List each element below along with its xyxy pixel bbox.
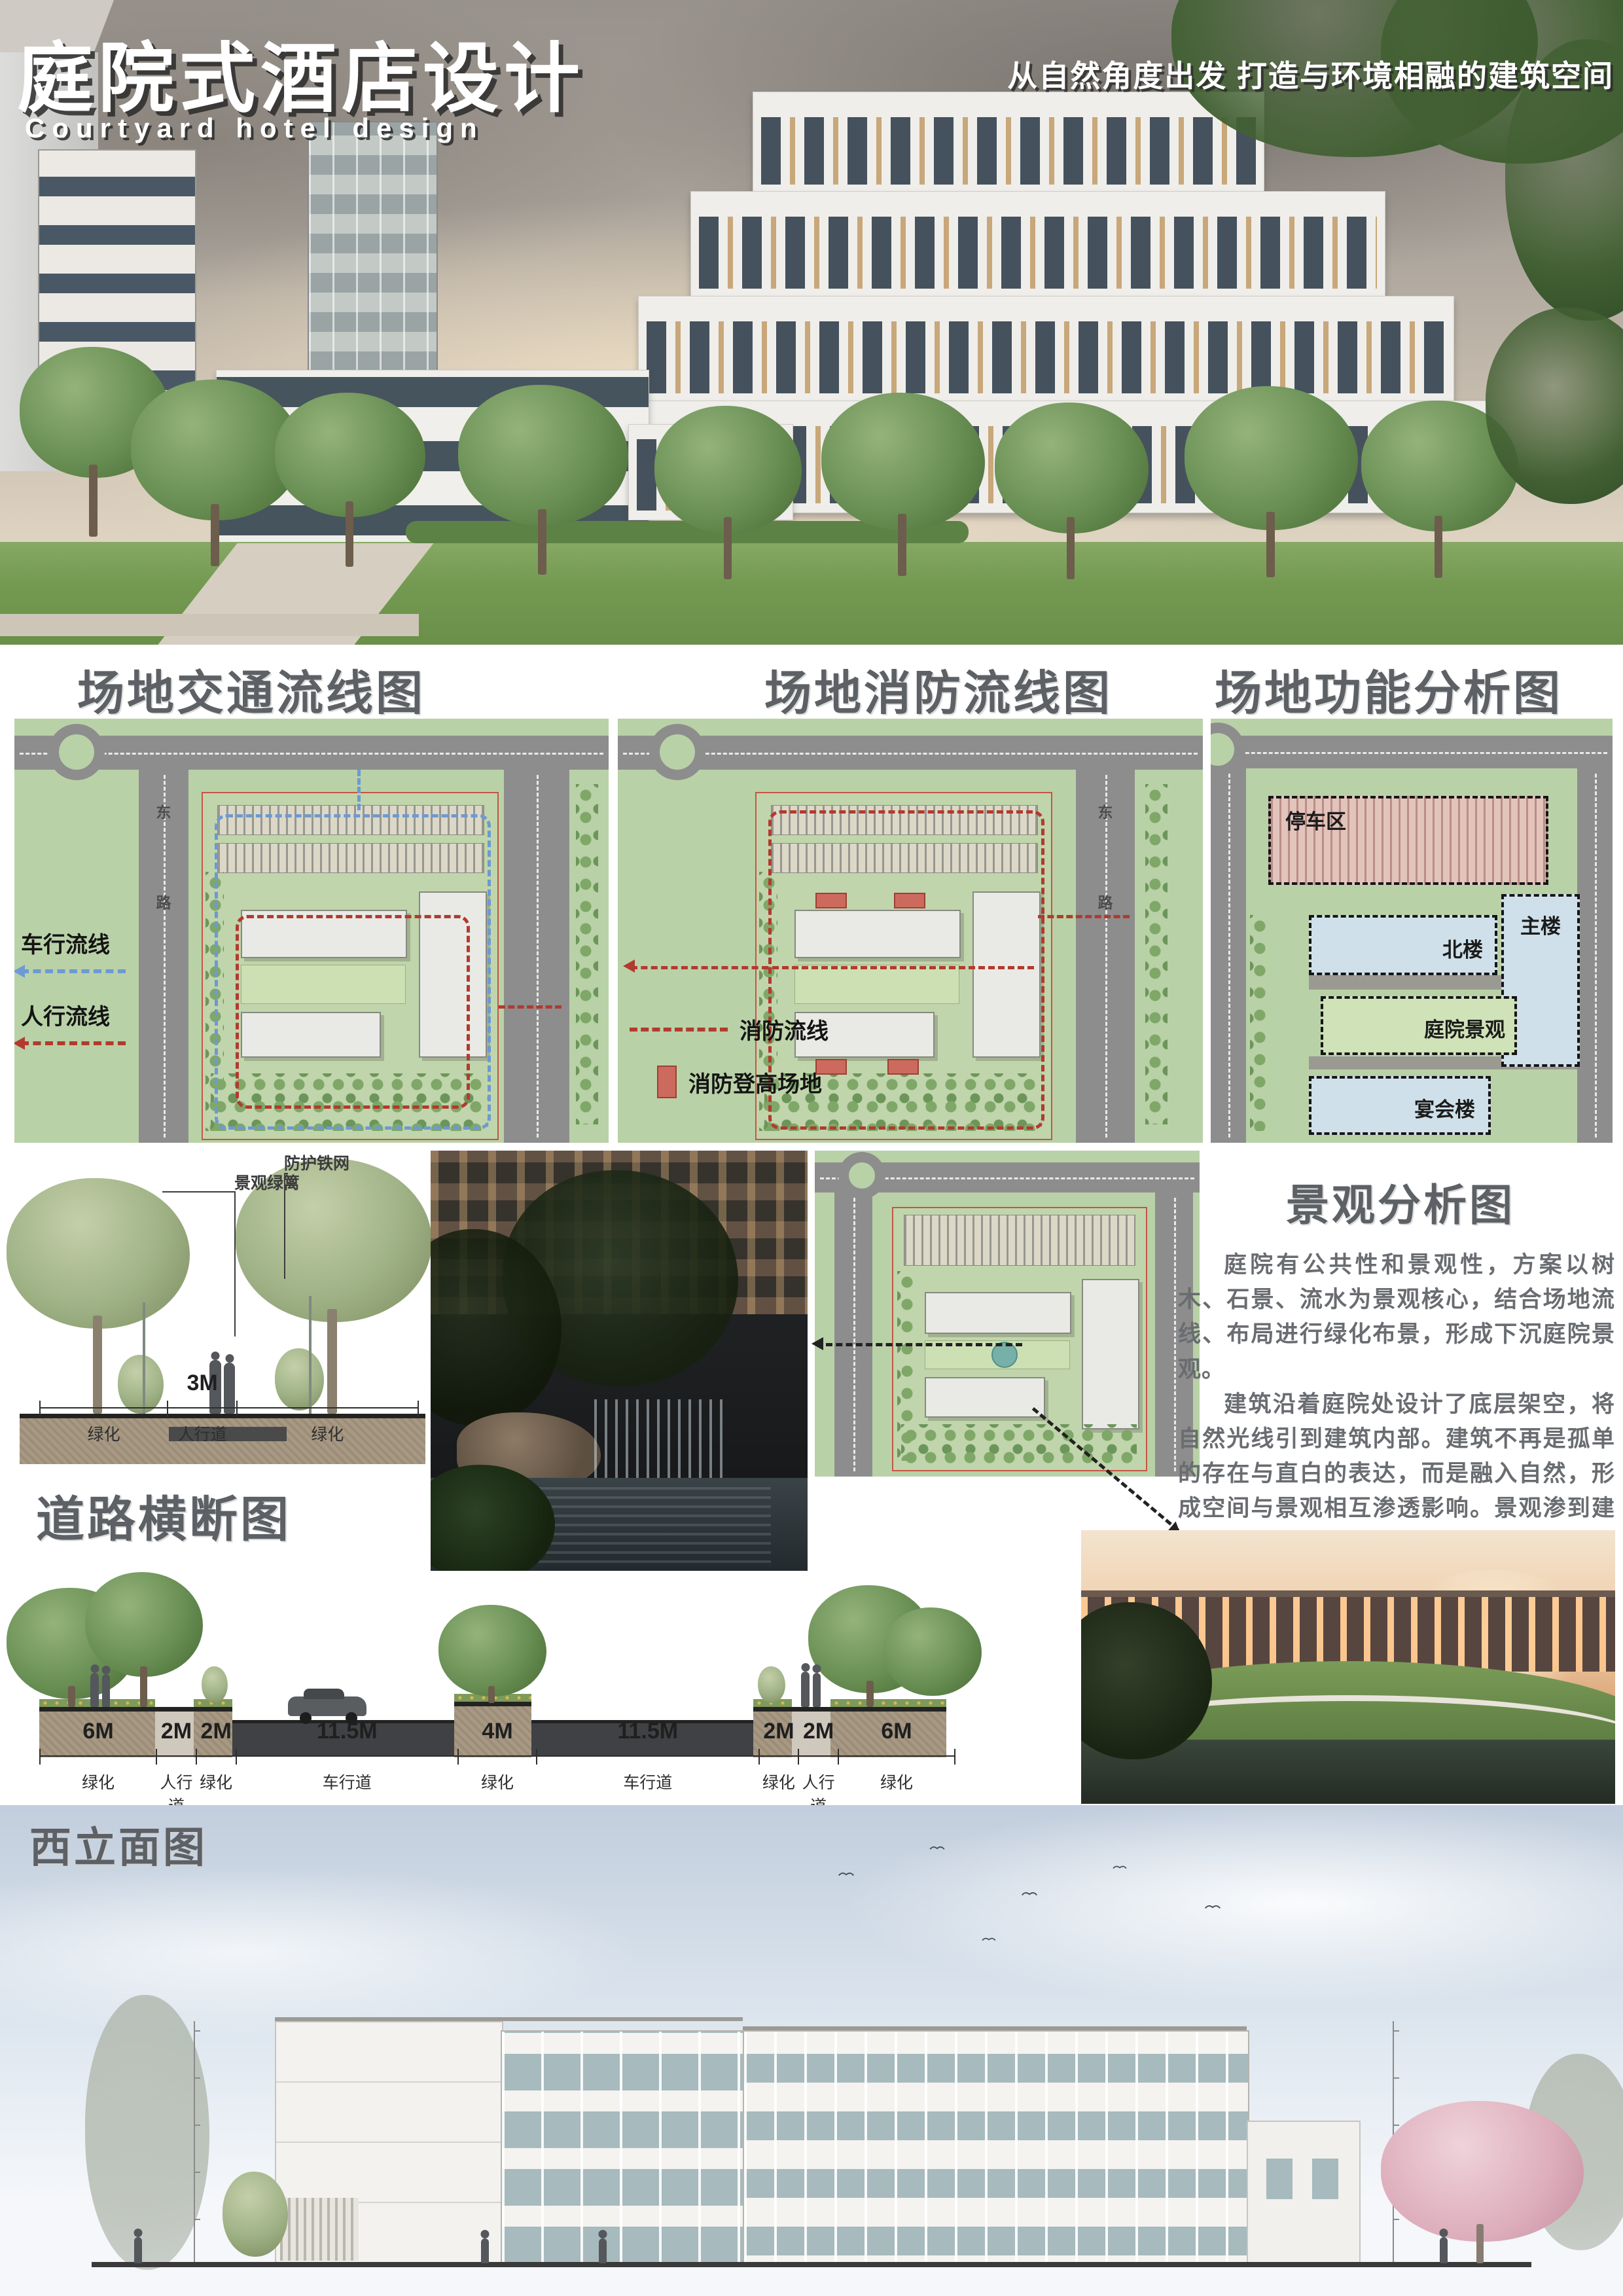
legend-fire-flow: 消防流线: [630, 1013, 829, 1045]
section-title-elevation: 西立面图: [29, 1814, 207, 1874]
road-centerline: [20, 753, 603, 755]
elevation-ground-line: [92, 2262, 1531, 2267]
lamp-post: [309, 1296, 312, 1414]
tree-trunk: [1476, 2224, 1484, 2263]
zone-banquet-label: 宴会楼: [1414, 1093, 1475, 1122]
hero-tier-5f: [753, 92, 1264, 194]
pedestrian-entry-line: [499, 1005, 562, 1009]
tree-trunk: [488, 1686, 495, 1703]
landscape-analysis-text: 庭院有公共性和景观性，方案以树木、石景、流水为景观核心，结合场地流线、布局进行绿…: [1178, 1247, 1615, 1561]
person-silhouette: [801, 1672, 810, 1707]
tree: [995, 403, 1149, 533]
tree-row: [576, 784, 598, 1124]
fire-platform-swatch: [657, 1066, 677, 1098]
north-building: [925, 1292, 1071, 1334]
person-silhouette: [1440, 2237, 1448, 2263]
tree-trunk: [346, 501, 353, 567]
zone-parking-label: 停车区: [1285, 805, 1346, 834]
tree-section-dims: 绿化 3M人行道 绿化: [39, 1401, 419, 1416]
section-title-road: 道路横断图: [36, 1480, 291, 1551]
tree-trunk: [866, 1681, 874, 1707]
road-centerline: [1228, 774, 1230, 1138]
dim-seg: 绿化: [39, 1401, 167, 1416]
tree: [275, 393, 425, 517]
label-hedge: 景观绿篱: [234, 1170, 300, 1194]
parking-rows: [904, 1215, 1135, 1266]
road-name-label: 东路: [1098, 800, 1113, 912]
tree-trunk: [1067, 517, 1075, 579]
road-left: 东路: [139, 770, 188, 1143]
analysis-arrow-to-photo: [826, 1343, 1022, 1346]
arrow-left-icon: [811, 1337, 823, 1350]
dim-seg: 2M人行道: [798, 1749, 838, 1765]
lamp-post: [143, 1302, 145, 1414]
elevation-block-b: [501, 2030, 745, 2265]
elevation-parapet: [275, 2017, 743, 2021]
street-tree: [85, 1572, 203, 1677]
median-tree: [438, 1605, 546, 1696]
hero-glass-tower: [308, 121, 438, 412]
hedge-bush: [202, 1666, 228, 1703]
hero-tier-4f-windows: [699, 217, 1377, 289]
road-right: [504, 770, 569, 1143]
elevation-parapet: [743, 2026, 1247, 2030]
tree: [1185, 386, 1358, 530]
poster-slogan: 从自然角度出发 打造与环境相融的建筑空间: [1007, 52, 1614, 96]
hero-tier-4f: [690, 191, 1385, 298]
person-silhouette: [102, 1674, 110, 1707]
elevation-tree-pink: [1381, 2101, 1584, 2242]
dim-seg: 4M绿化: [457, 1749, 536, 1765]
road-centerline: [1216, 752, 1607, 754]
legend-fire-platform-label: 消防登高场地: [688, 1066, 822, 1098]
tree-row: [901, 1424, 1137, 1463]
zone-banquet: 宴会楼: [1309, 1076, 1491, 1135]
tree-trunk: [327, 1309, 337, 1414]
arrow-left-icon: [623, 960, 635, 973]
bird-icon: [1021, 1890, 1038, 1897]
zone-courtyard: 庭院景观: [1321, 996, 1517, 1055]
zone-courtyard-label: 庭院景观: [1424, 1013, 1505, 1043]
bird-icon: [929, 1844, 945, 1851]
person-silhouette: [481, 2238, 489, 2263]
tree: [654, 406, 802, 533]
photo-waterfall: [594, 1399, 725, 1478]
dim-seg: 6M绿化: [838, 1749, 955, 1765]
arrow-left-icon: [14, 965, 25, 978]
elevation-panel: [0, 1805, 1623, 2296]
landscape-mini-plan: [815, 1151, 1200, 1477]
sunset-photo: [1081, 1530, 1615, 1804]
dim-seg: 绿化: [236, 1401, 419, 1416]
legend-vehicle-label: 车行流线: [21, 927, 135, 959]
hero-path-lower: [0, 614, 419, 636]
legend-pedestrian-line: [21, 1041, 126, 1045]
fire-entry-left: [631, 966, 768, 969]
tree-trunk: [724, 517, 732, 579]
person-silhouette: [813, 1673, 821, 1707]
vehicle-entry-line: [357, 770, 361, 810]
hero-tier-3f-windows: [647, 321, 1446, 393]
diagram-traffic: 东路 车行流线 人行流线: [14, 719, 609, 1143]
zone-main-label: 主楼: [1520, 910, 1561, 939]
elevation-block-c: [743, 2030, 1249, 2265]
poster-title-cn: 庭院式酒店设计: [17, 17, 585, 127]
person-silhouette: [134, 2237, 142, 2263]
road-right: 东路: [1076, 770, 1135, 1143]
elevation-block-d-window: [1312, 2159, 1338, 2199]
tree-row: [1250, 915, 1267, 1131]
dim-seg: 2M人行道: [156, 1749, 196, 1765]
elevation-block-d-window: [1266, 2159, 1293, 2199]
legend-fire-label: 消防流线: [740, 1013, 829, 1045]
bird-icon: [1204, 1903, 1221, 1910]
road-centerline: [1595, 774, 1597, 1138]
main-building: [1082, 1279, 1139, 1429]
road-left: [1211, 768, 1246, 1143]
section-title-traffic: 场地交通流线图: [77, 655, 425, 723]
banquet-building: [925, 1377, 1045, 1418]
tree-trunk: [1266, 512, 1275, 577]
dim-seg: 3M人行道: [167, 1401, 236, 1416]
tree-trunk: [1435, 516, 1442, 578]
dim-seg: 11.5M车行道: [236, 1749, 458, 1765]
legend-pedestrian-label: 人行流线: [21, 999, 135, 1031]
roundabout-island: [849, 1162, 875, 1189]
landscape-paragraph-1: 庭院有公共性和景观性，方案以树木、石景、流水为景观核心，结合场地流线、布局进行绿…: [1178, 1247, 1615, 1387]
road-right: [1577, 768, 1613, 1143]
bird-icon: [982, 1936, 996, 1942]
roundabout-island: [1211, 733, 1234, 766]
road-name-label: 东路: [156, 800, 171, 912]
hero-tier-3f: [638, 296, 1454, 403]
hero-tier-5f-windows: [761, 117, 1256, 185]
legend-fire-line: [630, 1028, 728, 1031]
road-left: [834, 1193, 872, 1477]
car-cabin: [304, 1689, 344, 1699]
hedge-bush: [758, 1666, 785, 1703]
roundabout: [48, 724, 105, 780]
elevation-tree-small: [223, 2172, 288, 2257]
road-centerline: [1174, 1198, 1176, 1471]
tree-trunk: [140, 1666, 147, 1707]
road-centerline: [853, 1198, 855, 1471]
bird-icon: [1113, 1864, 1127, 1870]
grass-strip: [830, 1699, 946, 1707]
legend-vehicle: 车行流线: [21, 927, 135, 973]
tree-row: [1145, 784, 1168, 1124]
photo-parapet: [1081, 1590, 1615, 1597]
person-silhouette: [599, 2238, 607, 2263]
poster-title-en: Courtyard hotel design: [25, 113, 484, 144]
person-silhouette: [90, 1673, 99, 1707]
hero-rendering: 庭院式酒店设计 Courtyard hotel design 从自然角度出发 打…: [0, 0, 1623, 645]
bird-icon: [838, 1871, 855, 1877]
tree-trunk: [211, 504, 219, 566]
zone-parking: 停车区: [1268, 796, 1548, 885]
dim-seg: 2M绿化: [758, 1749, 798, 1765]
tree: [821, 393, 985, 530]
diagram-function: 停车区 北楼 主楼 庭院景观 宴会楼: [1211, 719, 1613, 1143]
tree-trunk: [538, 509, 546, 575]
site-parcel: [892, 1207, 1147, 1471]
tree-trunk: [68, 1686, 75, 1707]
tree: [458, 385, 628, 526]
zone-north-label: 北楼: [1442, 933, 1483, 963]
label-hedge-leader: [162, 1191, 236, 1336]
tree-trunk: [93, 1316, 102, 1414]
pedestrian-route-loop: [236, 915, 470, 1109]
section-title-fire: 场地消防流线图: [764, 655, 1113, 723]
road-centerline: [537, 775, 539, 1138]
background-tree: [85, 1995, 209, 2270]
arrow-left-icon: [14, 1037, 25, 1050]
dim-seg: 2M绿化: [196, 1749, 236, 1765]
roundabout: [649, 724, 705, 780]
road-centerline: [623, 753, 1198, 755]
road-section-dims: 6M绿化 2M人行道 2M绿化 11.5M车行道 4M绿化 11.5M车行道 2…: [39, 1749, 955, 1765]
tree-trunk: [898, 514, 906, 576]
roundabout-island: [59, 734, 94, 770]
legend-pedestrian: 人行流线: [21, 999, 135, 1045]
section-title-function: 场地功能分析图: [1215, 655, 1563, 723]
courtyard-photo: [431, 1151, 808, 1571]
diagram-fire: 东路 消防流线 消防登高场地: [618, 719, 1203, 1143]
road-top: [1211, 736, 1613, 768]
zone-north-building: 北楼: [1309, 915, 1497, 975]
street-tree: [883, 1607, 982, 1696]
legend-fire-platform: 消防登高场地: [657, 1066, 822, 1098]
dim-seg: 6M绿化: [39, 1749, 156, 1765]
dim-seg: 11.5M车行道: [536, 1749, 758, 1765]
section-title-landscape: 景观分析图: [1286, 1170, 1515, 1233]
elevation-dim-left: [194, 2021, 200, 2267]
elevation-block-d: [1247, 2121, 1361, 2265]
poster: 庭院式酒店设计 Courtyard hotel design 从自然角度出发 打…: [0, 0, 1623, 2296]
fire-route-cross-h: [772, 966, 1034, 969]
elevation-block-a-slats: [280, 2198, 359, 2261]
road-top: [618, 736, 1203, 770]
roundabout-island: [660, 734, 695, 770]
legend-vehicle-line: [21, 969, 126, 973]
fire-entry-right: [1038, 915, 1130, 918]
tree-trunk: [89, 465, 98, 537]
